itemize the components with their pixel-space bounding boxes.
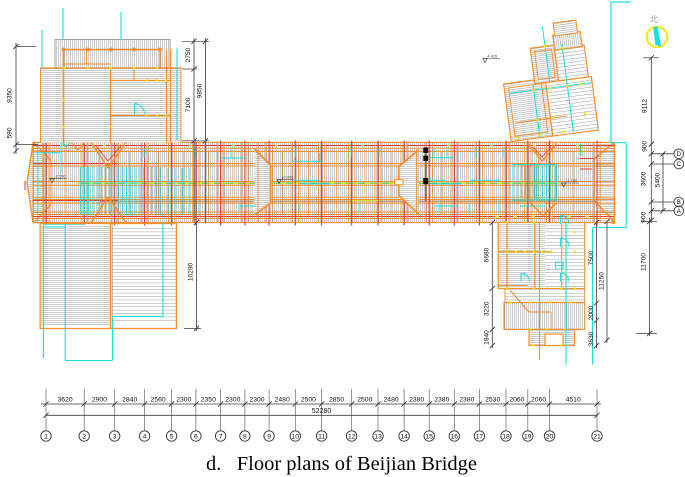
svg-text:3620: 3620 (58, 396, 73, 403)
svg-text:2300: 2300 (176, 396, 191, 403)
svg-text:C: C (677, 161, 682, 168)
svg-text:13: 13 (374, 433, 382, 440)
svg-text:7: 7 (219, 433, 223, 440)
svg-text:9: 9 (267, 433, 271, 440)
svg-text:3630: 3630 (588, 331, 595, 346)
svg-text:3: 3 (113, 433, 117, 440)
svg-text:2350: 2350 (201, 396, 216, 403)
svg-text:2500: 2500 (301, 396, 316, 403)
svg-text:-1.780: -1.780 (566, 178, 578, 183)
svg-text:2750: 2750 (185, 47, 192, 62)
svg-text:2300: 2300 (225, 396, 240, 403)
svg-text:5400: 5400 (654, 172, 661, 187)
svg-text:11250: 11250 (598, 272, 605, 290)
svg-text:2380: 2380 (434, 396, 449, 403)
svg-text:6680: 6680 (484, 247, 491, 262)
svg-text:7100: 7100 (185, 97, 192, 112)
svg-text:2560: 2560 (151, 396, 166, 403)
svg-text:11700: 11700 (641, 253, 648, 271)
svg-text:17: 17 (476, 433, 484, 440)
svg-text:北: 北 (650, 15, 658, 24)
svg-text:4: 4 (143, 433, 147, 440)
svg-text:4510: 4510 (566, 396, 581, 403)
svg-text:7500: 7500 (588, 250, 595, 265)
svg-text:2300: 2300 (249, 396, 264, 403)
svg-text:9850: 9850 (197, 83, 204, 98)
svg-text:1840: 1840 (484, 330, 491, 345)
svg-text:11: 11 (318, 433, 325, 440)
svg-text:10290: 10290 (188, 263, 195, 282)
svg-text:15: 15 (425, 433, 433, 440)
svg-text:14: 14 (400, 433, 408, 440)
svg-text:2380: 2380 (409, 396, 424, 403)
svg-text:2060: 2060 (531, 396, 546, 403)
svg-text:2500: 2500 (357, 396, 372, 403)
svg-text:21: 21 (593, 433, 601, 440)
svg-text:3600: 3600 (641, 171, 648, 186)
svg-text:3220: 3220 (484, 301, 491, 316)
svg-text:2060: 2060 (509, 396, 524, 403)
svg-text:12: 12 (348, 433, 356, 440)
svg-text:8: 8 (243, 433, 247, 440)
svg-text:9350: 9350 (7, 88, 14, 103)
svg-text:2840: 2840 (122, 396, 137, 403)
svg-text:19: 19 (524, 433, 532, 440)
svg-text:4.420: 4.420 (487, 54, 498, 59)
svg-text:2480: 2480 (275, 396, 290, 403)
svg-text:2: 2 (82, 433, 86, 440)
svg-text:2480: 2480 (384, 396, 399, 403)
svg-text:±0.000: ±0.000 (281, 175, 294, 180)
svg-text:1: 1 (44, 433, 48, 440)
svg-text:2850: 2850 (329, 396, 344, 403)
svg-text:5: 5 (170, 433, 174, 440)
svg-text:D: D (677, 151, 682, 158)
svg-text:20: 20 (546, 433, 554, 440)
svg-text:2380: 2380 (459, 396, 474, 403)
svg-text:9112: 9112 (642, 99, 649, 114)
svg-text:-3.500: -3.500 (54, 174, 66, 179)
svg-text:900: 900 (641, 211, 648, 222)
svg-text:10: 10 (292, 433, 300, 440)
svg-text:18: 18 (502, 433, 510, 440)
svg-text:16: 16 (451, 433, 459, 440)
svg-text:2530: 2530 (485, 396, 500, 403)
svg-text:B: B (677, 199, 681, 206)
svg-text:6: 6 (194, 433, 198, 440)
svg-text:900: 900 (641, 140, 648, 151)
svg-text:52280: 52280 (312, 408, 332, 415)
svg-text:d. Floor plans of Beijian Br: d. Floor plans of Beijian Bridge (206, 453, 477, 475)
svg-text:2000: 2000 (588, 305, 595, 320)
svg-text:590: 590 (7, 127, 14, 138)
svg-text:2900: 2900 (92, 396, 107, 403)
